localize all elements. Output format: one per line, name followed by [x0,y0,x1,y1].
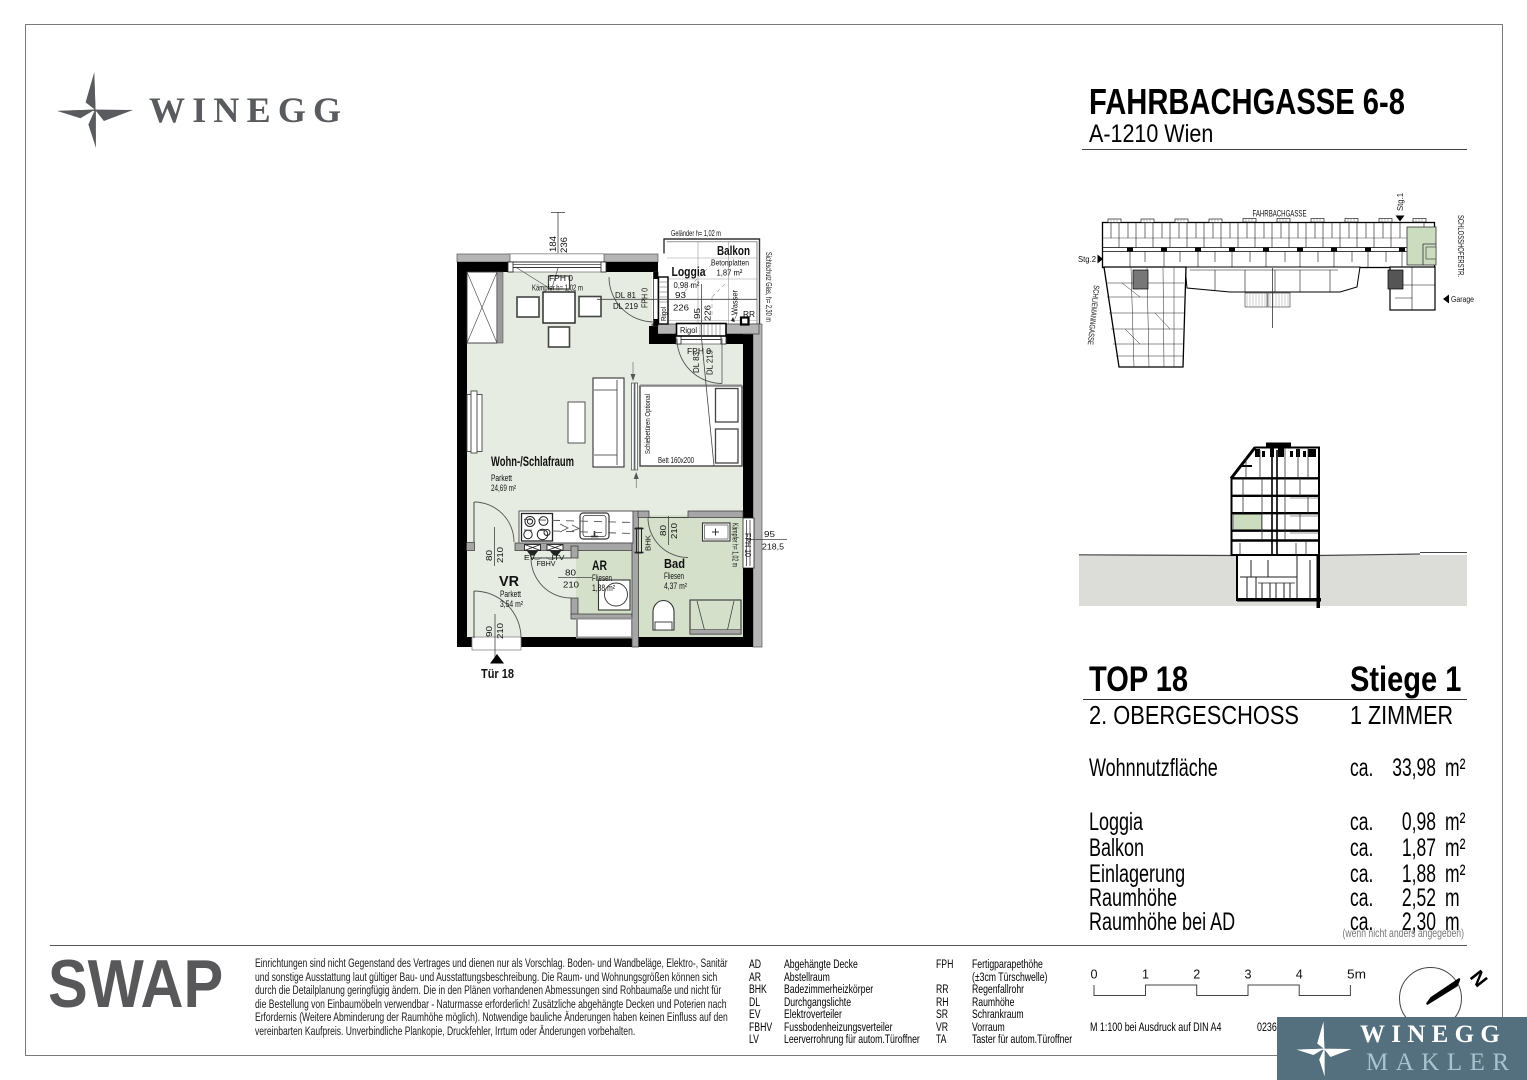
svg-text:24,69 m²: 24,69 m² [491,483,516,493]
svg-text:2: 2 [1193,967,1200,982]
svg-text:93: 93 [675,290,686,300]
svg-text:FPH 10: FPH 10 [743,533,753,557]
svg-text:Kämpfer h= 1,02 m: Kämpfer h= 1,02 m [731,523,740,567]
svg-text:Bett 160x200: Bett 160x200 [658,455,694,465]
svg-text:DL 81: DL 81 [615,290,636,300]
svg-text:Geländer h= 1,02 m: Geländer h= 1,02 m [671,228,721,238]
svg-text:Fliesen: Fliesen [664,571,684,581]
svg-text:1,87 m²: 1,87 m² [717,268,743,278]
svg-text:226: 226 [703,305,713,321]
svg-text:80: 80 [658,525,668,536]
svg-text:Parkett: Parkett [491,473,512,483]
svg-text:3,54 m²: 3,54 m² [500,599,523,609]
svg-text:0,98 m²: 0,98 m² [674,280,700,290]
svg-text:Stg.1: Stg.1 [1396,192,1405,211]
svg-text:Sichtschutz Glas, h= 2,30 m: Sichtschutz Glas, h= 2,30 m [764,252,774,322]
svg-text:DL 83: DL 83 [691,352,701,373]
svg-text:0: 0 [1091,967,1098,982]
svg-text:SCHLOSSHOFERSTR.: SCHLOSSHOFERSTR. [1456,215,1465,277]
svg-text:ITV: ITV [552,553,565,562]
svg-text:Wasser: Wasser [730,290,740,315]
svg-text:Fliesen: Fliesen [592,573,612,583]
svg-text:226: 226 [673,303,689,313]
svg-text:SCHLIEMANNGASSE: SCHLIEMANNGASSE [1086,285,1101,346]
svg-text:Betonplatten: Betonplatten [711,258,749,268]
svg-text:95: 95 [764,529,775,539]
svg-text:EV: EV [524,553,535,562]
svg-text:4,37 m²: 4,37 m² [664,581,687,591]
svg-text:FPH 0: FPH 0 [640,288,650,308]
svg-text:210: 210 [669,523,679,539]
svg-text:Garage: Garage [1451,295,1474,304]
svg-text:FPH 0: FPH 0 [549,273,573,283]
svg-text:BHK: BHK [644,535,653,551]
svg-text:1,88 m²: 1,88 m² [592,583,615,593]
svg-text:Bad: Bad [664,557,685,571]
svg-text:236: 236 [559,237,569,253]
svg-text:Balkon: Balkon [717,244,750,258]
svg-text:5m: 5m [1347,967,1366,982]
svg-text:DL 219: DL 219 [705,350,715,375]
svg-text:Parkett: Parkett [500,589,521,599]
svg-text:218,5: 218,5 [762,542,784,552]
svg-text:95: 95 [692,308,702,319]
svg-text:AR: AR [592,558,607,573]
svg-text:Rigol: Rigol [659,307,668,321]
svg-text:210: 210 [495,547,505,563]
svg-text:Stg.2: Stg.2 [1078,255,1097,264]
svg-text:N: N [1465,967,1491,992]
svg-text:Loggia: Loggia [672,265,707,279]
svg-text:210: 210 [563,580,579,590]
svg-text:Tür 18: Tür 18 [481,666,514,681]
svg-text:VR: VR [499,574,520,590]
svg-text:1: 1 [1142,967,1149,982]
svg-text:80: 80 [565,568,576,578]
svg-text:80: 80 [484,550,494,561]
svg-text:184: 184 [548,236,558,252]
svg-text:Rigol: Rigol [680,325,697,335]
svg-text:DL 219: DL 219 [613,301,638,311]
svg-text:Schiebetüren Optional: Schiebetüren Optional [643,394,652,454]
svg-text:90: 90 [484,626,494,637]
svg-text:Wohn-/Schlafraum: Wohn-/Schlafraum [491,454,574,469]
svg-text:210: 210 [495,623,505,639]
svg-text:3: 3 [1245,967,1252,982]
svg-text:4: 4 [1296,967,1303,982]
svg-text:FAHRBACHGASSE: FAHRBACHGASSE [1253,209,1307,219]
svg-text:Kämpfer h= 1,02 m: Kämpfer h= 1,02 m [532,283,583,293]
